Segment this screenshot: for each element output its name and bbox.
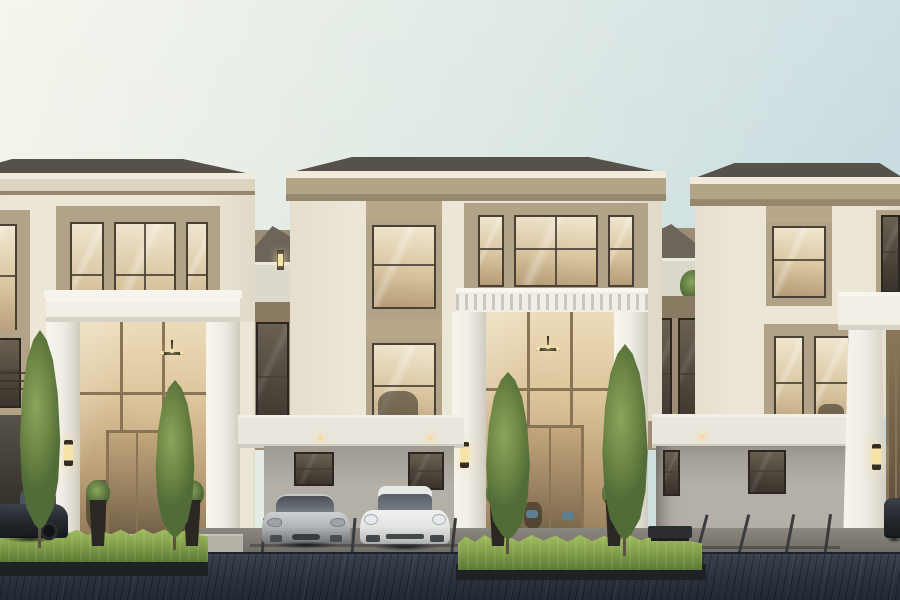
car-shadow [264, 540, 349, 550]
car-headlight-left [267, 518, 282, 527]
terrace-link-left-band [253, 302, 292, 322]
interior-blue-cushion [562, 512, 574, 520]
chandelier-bulbs [546, 345, 550, 349]
middle-window-header-panel [366, 201, 442, 221]
window-pane [478, 215, 504, 287]
middle-carport-lintel [238, 415, 464, 448]
left-portico-column-right [206, 322, 240, 550]
right-third-floor-window-partial [876, 210, 900, 300]
right-carport-window-2 [748, 450, 786, 494]
left-portico-beam [46, 298, 240, 322]
middle-carport-window-1 [294, 452, 334, 486]
dark-vehicle-sliver [884, 498, 900, 544]
right-window-header-panel [766, 206, 832, 222]
car-shadow [362, 542, 448, 552]
left-portico-cap [44, 290, 242, 298]
terrace-lamp-icon [277, 250, 284, 270]
wall-sconce-icon [64, 440, 73, 466]
middle-third-floor-window-left [366, 221, 442, 319]
chandelier-bulbs [170, 349, 174, 353]
left-third-floor-window-partial [0, 210, 30, 348]
middle-carport-window-2 [408, 452, 444, 490]
ceiling-light-icon [318, 436, 323, 440]
car-shadow [884, 534, 900, 544]
middle-building-cornice [286, 171, 666, 201]
window-pane [772, 226, 826, 298]
car-intake-right [430, 535, 444, 542]
interior-blue-cushion [526, 510, 538, 518]
car-headlight-right [432, 514, 446, 525]
right-carport-lintel [652, 414, 848, 448]
window-pane [514, 215, 598, 287]
left-building-cornice [0, 173, 255, 197]
window-pane [0, 224, 17, 334]
white-sports-coupe [360, 486, 450, 552]
chandelier-icon [535, 336, 561, 366]
ceiling-light-icon [700, 435, 705, 439]
chandelier-icon [159, 340, 185, 370]
right-third-floor-window [766, 222, 832, 306]
right-building-cornice [690, 177, 900, 206]
wall-sconce-icon [872, 444, 881, 470]
middle-balcony-balustrade [456, 288, 648, 312]
window-pane [608, 215, 634, 287]
stall-front-edge [690, 546, 840, 549]
car-grille [386, 534, 424, 539]
car-intake-left [366, 535, 380, 542]
car-body [884, 498, 900, 538]
scene-luxury-townhomes [0, 0, 900, 600]
bench [648, 526, 692, 538]
middle-window-header-panel-2 [366, 319, 442, 339]
car-headlight-right [330, 518, 345, 527]
silver-sports-coupe [262, 492, 350, 550]
ceiling-light-icon [428, 436, 433, 440]
car-shadow [0, 534, 66, 544]
transom [80, 392, 206, 395]
window-pane [881, 215, 900, 293]
window-pane [372, 225, 436, 309]
car-headlight-left [364, 514, 378, 525]
right-carport-window-1 [663, 450, 680, 496]
middle-third-floor-window-group [464, 203, 648, 299]
right-portico-beam [838, 292, 900, 330]
terrace-link-left-parapet [251, 262, 294, 302]
